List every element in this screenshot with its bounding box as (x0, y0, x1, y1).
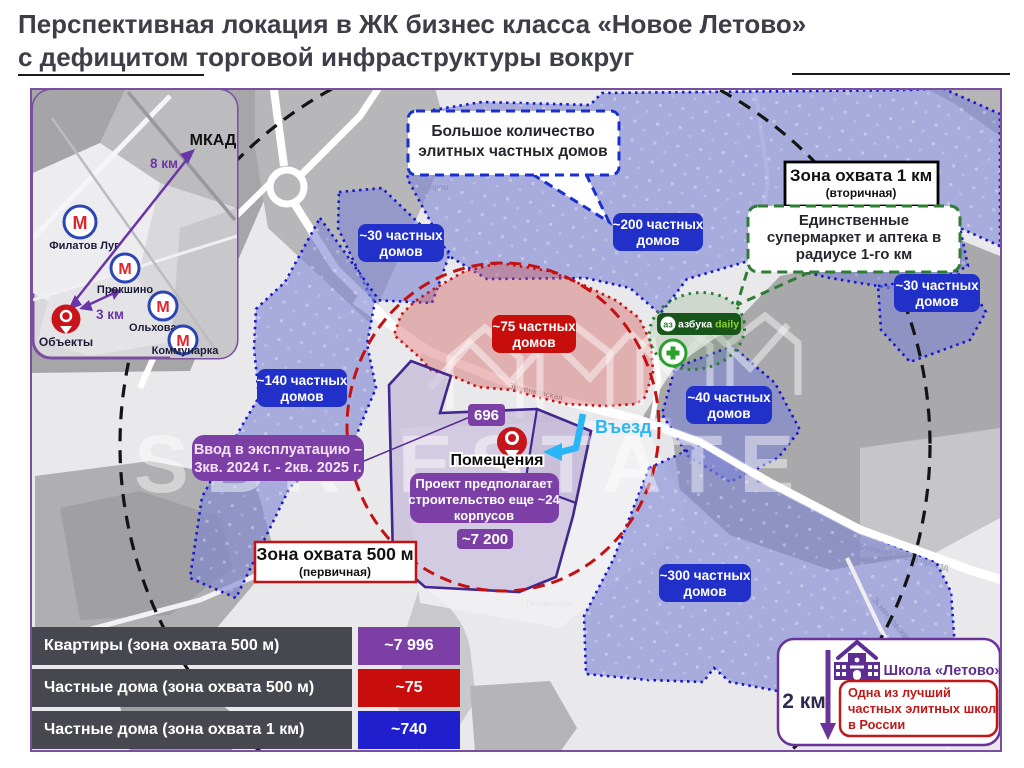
svg-text:аз: аз (663, 320, 673, 330)
svg-text:супермаркет и аптека в: супермаркет и аптека в (767, 229, 941, 246)
svg-text:~7 200: ~7 200 (462, 531, 508, 548)
svg-text:~200 частных: ~200 частных (613, 217, 704, 232)
svg-text:Единственные: Единственные (799, 212, 909, 229)
svg-text:домов: домов (916, 294, 959, 309)
svg-text:(первичная): (первичная) (299, 565, 371, 579)
svg-text:Школа «Летово»: Школа «Летово» (884, 663, 1002, 679)
svg-text:домов: домов (637, 233, 680, 248)
svg-text:домов: домов (380, 244, 423, 259)
svg-text:Зона охвата 1 км: Зона охвата 1 км (790, 166, 932, 185)
svg-text:радиусе 1-го км: радиусе 1-го км (796, 246, 912, 263)
svg-text:домов: домов (708, 406, 751, 421)
svg-text:(вторичная): (вторичная) (826, 186, 897, 200)
svg-text:2 км: 2 км (782, 690, 826, 713)
svg-text:~30 частных: ~30 частных (359, 228, 443, 243)
svg-text:~30 частных: ~30 частных (895, 278, 979, 293)
svg-text:элитных частных домов: элитных частных домов (418, 143, 607, 160)
svg-text:домов: домов (513, 335, 556, 350)
svg-text:Филатов Луг: Филатов Луг (49, 240, 119, 252)
svg-text:Проект предполагает: Проект предполагает (415, 476, 552, 491)
svg-text:домов: домов (684, 584, 727, 599)
svg-text:Коммунарка: Коммунарка (152, 345, 220, 357)
svg-text:М: М (156, 299, 169, 316)
svg-text:Помещения: Помещения (450, 452, 543, 469)
svg-text:М: М (73, 213, 88, 233)
svg-text:Большое количество: Большое количество (431, 123, 594, 140)
svg-text:Прокшино: Прокшино (97, 284, 153, 296)
svg-text:Одна из лучший: Одна из лучший (848, 685, 951, 700)
svg-text:частных элитных школ: частных элитных школ (848, 701, 996, 716)
svg-text:~140 частных: ~140 частных (257, 373, 348, 388)
svg-text:~300 частных: ~300 частных (660, 568, 751, 583)
svg-text:8 км: 8 км (150, 156, 178, 171)
svg-text:~75 частных: ~75 частных (492, 319, 576, 334)
svg-text:МКАД: МКАД (190, 132, 237, 149)
svg-text:в России: в России (848, 717, 905, 732)
svg-text:строительство еще ~24: строительство еще ~24 (408, 492, 560, 507)
svg-text:Ввод в эксплуатацию –: Ввод в эксплуатацию – (194, 442, 362, 458)
svg-text:696: 696 (474, 407, 499, 424)
svg-text:корпусов: корпусов (454, 508, 514, 523)
svg-text:М: М (118, 261, 131, 278)
svg-text:домов: домов (281, 389, 324, 404)
svg-text:Объекты: Объекты (39, 335, 93, 349)
svg-text:3кв. 2024 г. - 2кв. 2025 г.: 3кв. 2024 г. - 2кв. 2025 г. (194, 460, 361, 476)
svg-text:азбука daily: азбука daily (678, 319, 739, 331)
svg-text:~40 частных: ~40 частных (687, 390, 771, 405)
svg-text:Въезд: Въезд (595, 417, 652, 437)
svg-text:3 км: 3 км (96, 307, 124, 322)
svg-text:Зона охвата 500 м: Зона охвата 500 м (256, 544, 413, 564)
